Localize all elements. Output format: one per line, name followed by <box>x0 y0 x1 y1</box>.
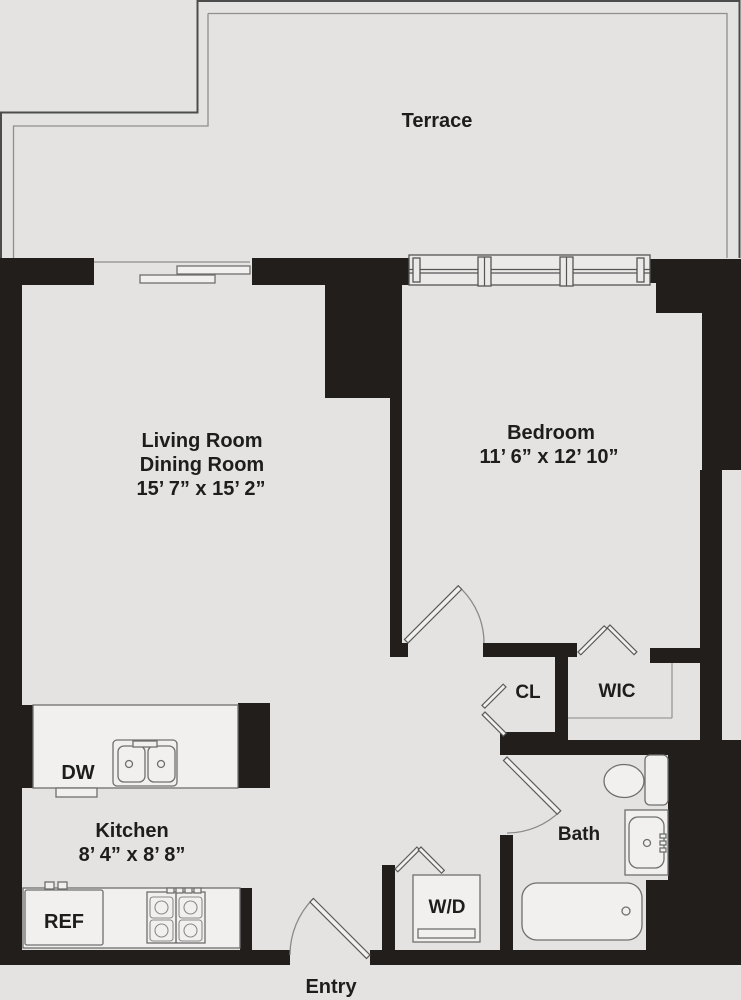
wall-top-mid <box>252 258 409 285</box>
wall-bath-right-block <box>646 880 741 950</box>
window-post-left <box>413 258 420 282</box>
refrigerator-hinge-1 <box>45 882 54 889</box>
refrigerator-hinge-2 <box>58 882 67 889</box>
bathtub-drain <box>622 907 630 915</box>
bath-faucet-1 <box>660 834 666 838</box>
bath-label: Bath <box>558 824 600 845</box>
stove-knob-4 <box>194 888 201 893</box>
entry-label: Entry <box>305 976 357 998</box>
wall-cl-bottom <box>500 732 555 740</box>
bedroom-dims: 11’ 6” x 12’ 10” <box>479 446 618 468</box>
wall-kitchen-upper-right-stub <box>238 703 270 788</box>
living-room-label: Living Room <box>141 430 262 452</box>
sink-faucet <box>133 741 157 747</box>
washer-dryer-label: W/D <box>429 897 466 918</box>
wall-wic-top <box>650 648 702 663</box>
wall-bottom-left <box>0 950 290 965</box>
stove-knob-2 <box>176 888 183 893</box>
wall-bedroom-bottom <box>483 643 577 657</box>
terrace-label: Terrace <box>402 110 473 132</box>
wall-right-mid <box>700 470 722 743</box>
terrace-sliding-door <box>94 262 250 283</box>
sliding-door-panel-outer <box>177 266 250 274</box>
bedroom-window <box>409 255 650 286</box>
toilet-bowl <box>604 765 644 798</box>
dining-room-label: Dining Room <box>140 454 264 476</box>
wd-slot <box>418 929 475 938</box>
wall-column-living-bedroom <box>325 285 402 398</box>
floorplan-canvas: Terrace Living Room Dining Room 15’ 7” x… <box>0 0 741 1000</box>
wic-label: WIC <box>599 681 636 702</box>
wall-partition-bedroom <box>390 398 402 643</box>
wall-bath-top <box>500 740 670 755</box>
wall-bedroom-door-jamb <box>390 643 408 657</box>
dishwasher-label: DW <box>61 762 94 784</box>
bath-sink-drain <box>644 840 651 847</box>
wall-kitchen-upper-left-stub <box>0 705 33 788</box>
wall-top-right-block-a <box>646 259 741 283</box>
bedroom-label: Bedroom <box>507 422 595 444</box>
floor-areas <box>13 14 727 950</box>
stove-knob-3 <box>185 888 192 893</box>
wall-bath-left <box>500 835 513 950</box>
kitchen-label: Kitchen <box>95 820 168 842</box>
terrace-floor <box>13 14 727 258</box>
wall-bottom-right <box>370 950 741 965</box>
floorplan-svg: Terrace Living Room Dining Room 15’ 7” x… <box>0 0 741 1000</box>
wall-right-upper <box>702 313 741 470</box>
kitchen-dims: 8’ 4” x 8’ 8” <box>79 844 186 866</box>
wd-bifold-leaf-2 <box>418 847 444 873</box>
wall-top-right-block-b <box>656 283 741 313</box>
wall-kitchen-lower-right-stub <box>240 888 252 950</box>
refrigerator-label: REF <box>44 911 84 933</box>
window-post-right <box>637 258 644 282</box>
bath-faucet-2 <box>660 841 666 845</box>
stove-knob-1 <box>167 888 174 893</box>
wall-bath-right <box>668 740 741 880</box>
wd-bifold-leaf-1 <box>395 847 420 872</box>
toilet-tank <box>645 755 668 805</box>
bath-faucet-3 <box>660 848 666 852</box>
wall-wd-closet <box>382 865 395 950</box>
sliding-door-panel-inner <box>140 275 215 283</box>
sink-drain-right <box>158 761 165 768</box>
sink-drain-left <box>126 761 133 768</box>
wall-left-outer <box>0 258 22 965</box>
closet-label: CL <box>515 682 541 703</box>
living-room-dims: 15’ 7” x 15’ 2” <box>137 478 266 500</box>
dishwasher-handle <box>56 788 97 797</box>
wall-cl-wic-divider <box>555 657 568 740</box>
